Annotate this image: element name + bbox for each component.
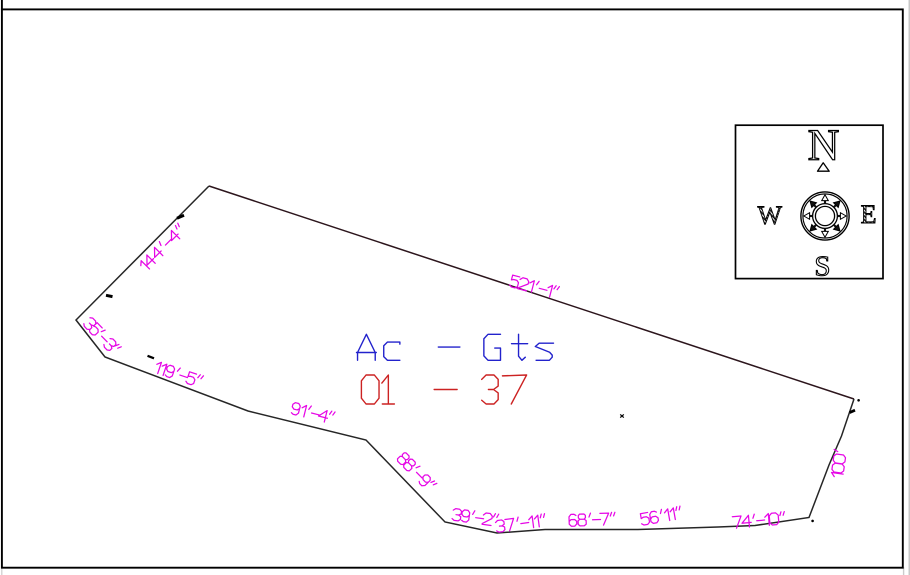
svg-text:S: S [814, 251, 830, 283]
svg-text:E: E [861, 200, 877, 229]
svg-text:N: N [808, 121, 840, 170]
svg-text:W: W [758, 201, 783, 230]
